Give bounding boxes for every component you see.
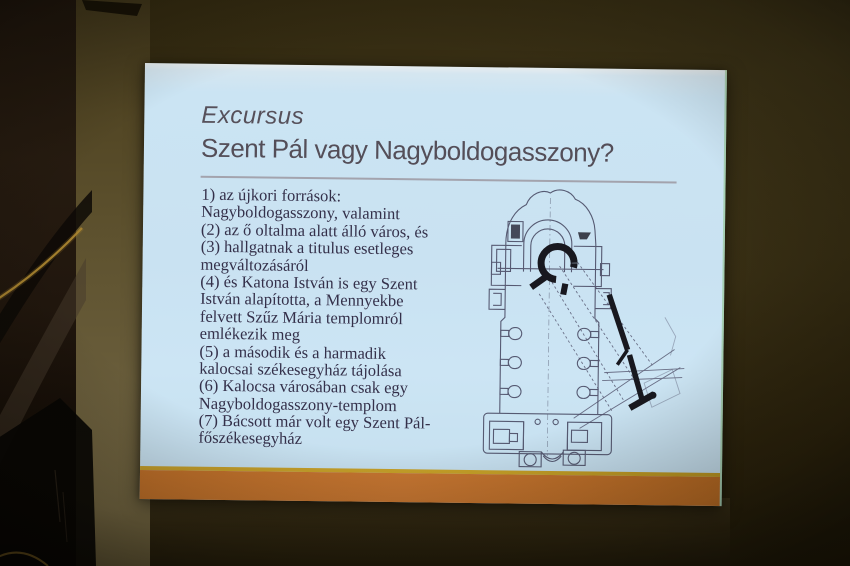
body-text-line: főszékesegyház <box>198 429 498 450</box>
screen-area-below-slide <box>150 498 730 566</box>
presentation-slide: Excursus Szent Pál vagy Nagyboldogasszon… <box>140 63 727 506</box>
title-divider <box>201 176 677 183</box>
photo-of-projected-slide: Excursus Szent Pál vagy Nagyboldogasszon… <box>0 0 850 566</box>
church-floor-plan <box>475 185 698 470</box>
excavated-wall-fragments <box>528 246 658 408</box>
slide-subtitle: Szent Pál vagy Nagyboldogasszony? <box>201 133 614 168</box>
slide-title: Excursus <box>201 102 614 135</box>
dark-wall-left <box>0 0 80 566</box>
slide-title-block: Excursus Szent Pál vagy Nagyboldogasszon… <box>201 102 614 168</box>
slide-body-text: 1) az újkori források:Nagyboldogasszony,… <box>198 186 501 451</box>
